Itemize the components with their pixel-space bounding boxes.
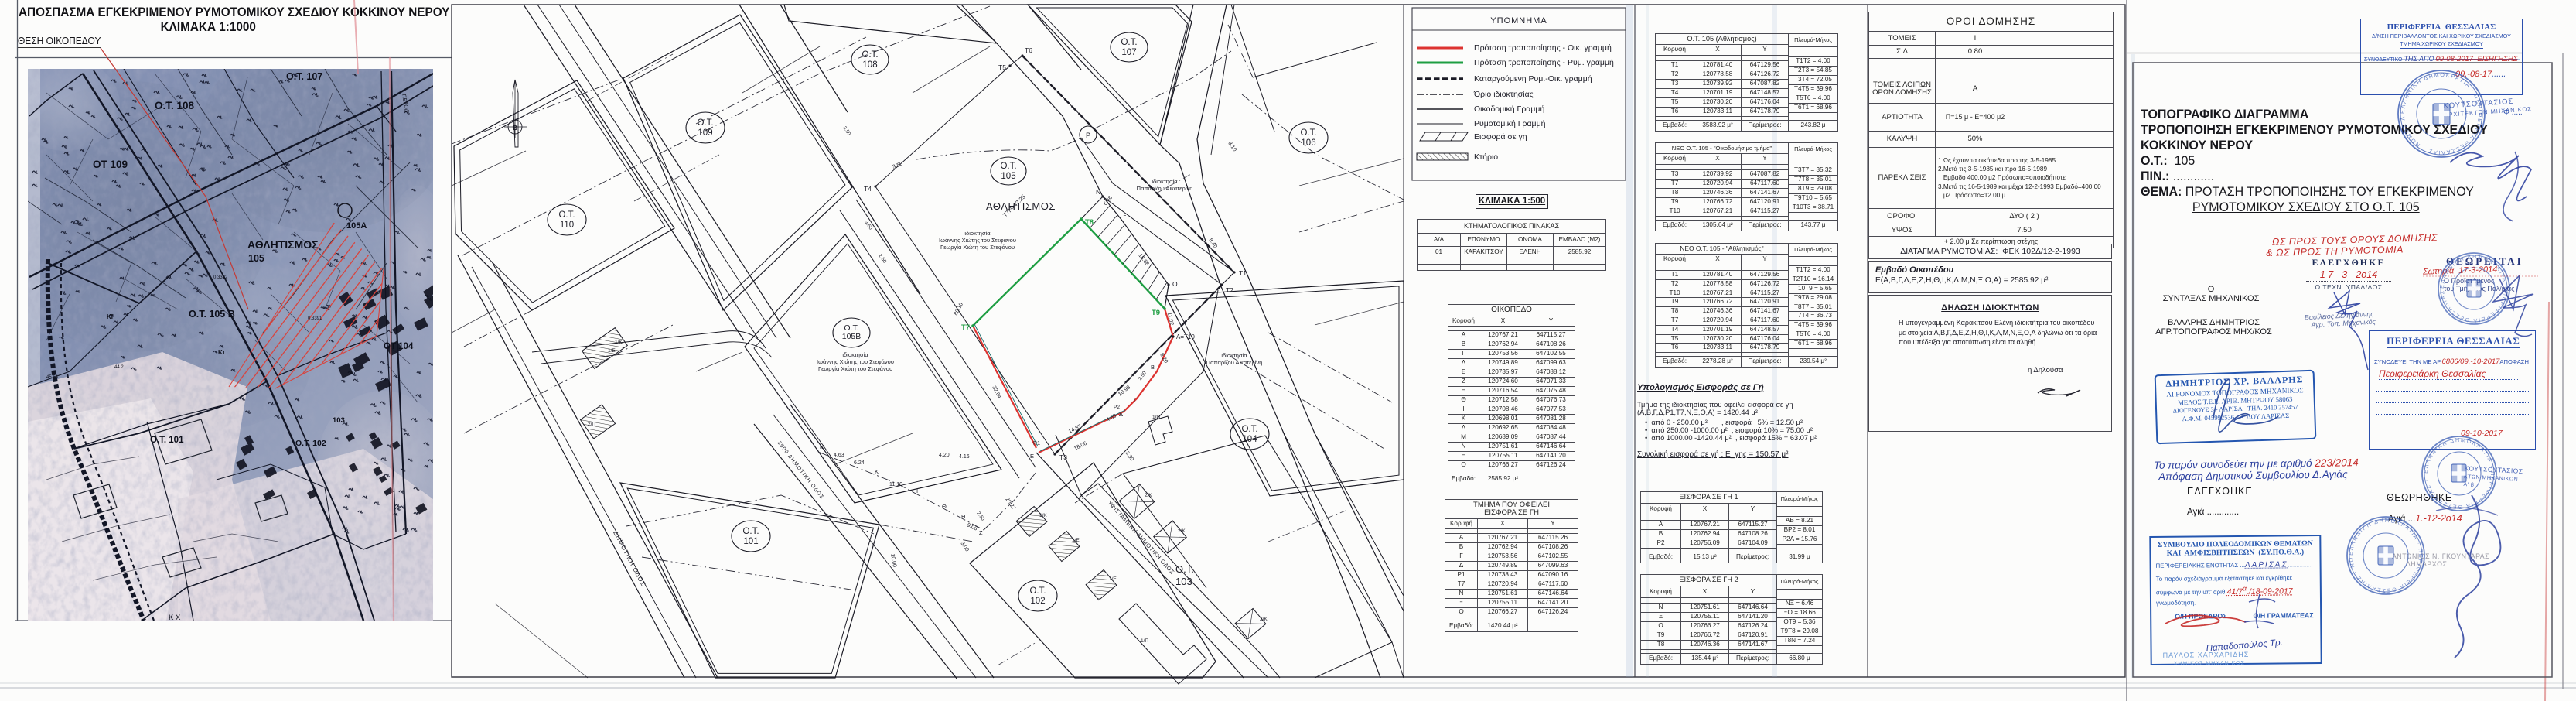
svg-text:ΕΛΛΗΝΙΚΗ ΔΗΜΟΚΡΑΤΙΑ · ΠΕΡΙΦΕΡΕ: ΕΛΛΗΝΙΚΗ ΔΗΜΟΚΡΑΤΙΑ · ΠΕΡΙΦΕΡΕΙΑ ΘΕΣΣΑΛΙ…: [0, 0, 2509, 324]
svg-text:ΕΛΛΗΝΙΚΗ ΔΗΜΟΚΡΑΤΙΑ · ΠΕΡΙΦΕΡΕ: ΕΛΛΗΝΙΚΗ ΔΗΜΟΚΡΑΤΙΑ · ΠΕΡΙΦΕΡΕΙΑ ΘΕΣΣΑΛΙ…: [0, 0, 2496, 511]
svg-text:ΕΛΛΗΝΙΚΗ ΔΗΜΟΚΡΑΤΙΑ · ΠΕΡΙΦΕΡΕ: ΕΛΛΗΝΙΚΗ ΔΗΜΟΚΡΑΤΙΑ · ΠΕΡΙΦΕΡΕΙΑ ΘΕΣΣΑΛΙ…: [0, 0, 2484, 156]
svg-text:ΕΛΛΗΝΙΚΗ ΔΗΜΟΚΡΑΤΙΑ · ΠΕΡΙΦΕΡΕ: ΕΛΛΗΝΙΚΗ ΔΗΜΟΚΡΑΤΙΑ · ΠΕΡΙΦΕΡΕΙΑ ΘΕΣΣΑΛΙ…: [0, 0, 2424, 594]
